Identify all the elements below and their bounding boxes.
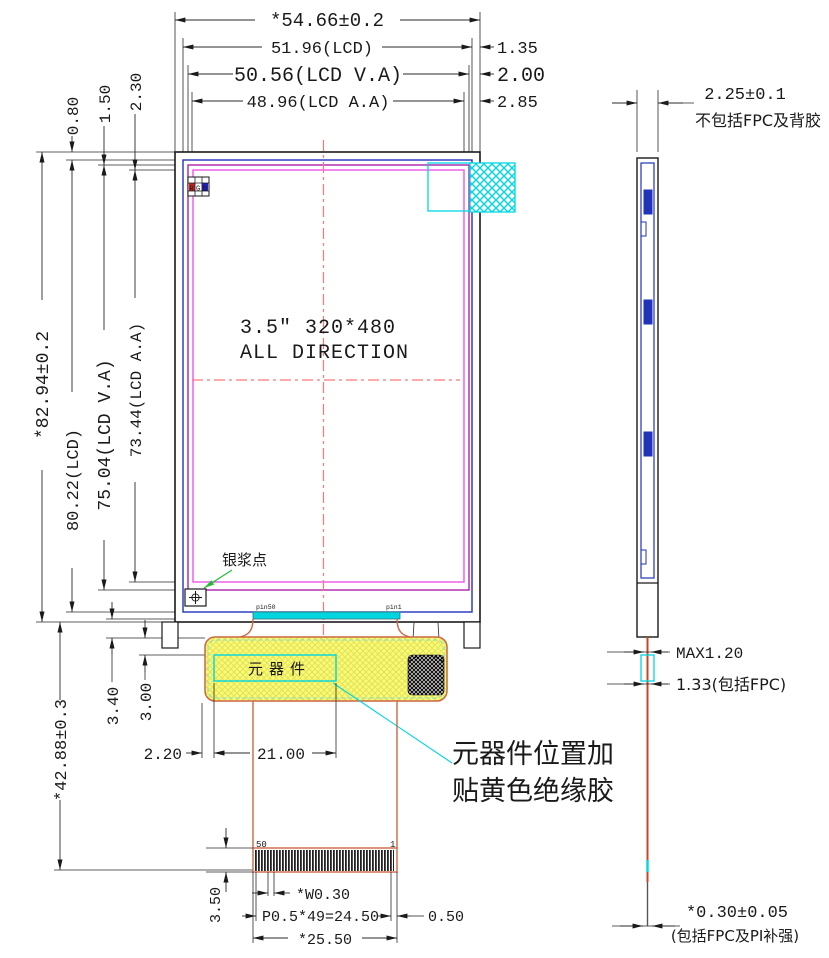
silver-paste-label: 银浆点 (222, 551, 267, 569)
module-outline (175, 152, 480, 622)
dim-finger-width: *W0.30 (296, 887, 350, 904)
rgb-g: G (196, 186, 200, 194)
component-blob (408, 655, 444, 695)
module-foot-left (162, 622, 178, 648)
dim-thickness-note: 不包括FPC及背胶 (695, 111, 821, 130)
dim-fpc-length: *42.88±0.3 (53, 699, 72, 801)
dim-comp-offset-b: 3.40 (105, 687, 123, 725)
dim-va-height: 75.04(LCD V.A) (96, 359, 116, 510)
dim-right-gap-va: 2.00 (497, 65, 545, 88)
side-tab-2 (644, 300, 652, 324)
dim-lcd-width: 51.96(LCD) (271, 40, 373, 59)
pin-label-right: pin1 (386, 604, 402, 611)
dim-aa-width: 48.96(LCD A.A) (247, 94, 390, 113)
side-view: 2.25±0.1 不包括FPC及背胶 MAX1.20 1.33(包括FPC) *… (607, 86, 821, 945)
module-front-view: R G B 3.5" 320*480 ALL DIRECTION 银浆点 pin… (162, 140, 515, 668)
dim-right-gap-aa: 2.85 (497, 94, 538, 113)
dim-fpc-thickness: *0.30±0.05 (686, 904, 788, 923)
dim-comp-left-gap: 2.20 (144, 746, 182, 764)
module-foot-right (464, 622, 480, 648)
drawing-canvas: *54.66±0.2 51.96(LCD) 1.35 50.56(LCD V.A… (0, 0, 829, 958)
pin-number-left: 50 (256, 840, 267, 850)
dim-va-width: 50.56(LCD V.A) (234, 65, 402, 88)
note-line1: 元器件位置加 (452, 739, 614, 770)
dim-right-gap-lcd: 1.35 (497, 40, 538, 59)
pin-number-right: 1 (390, 840, 395, 850)
side-tab-1 (644, 190, 652, 214)
rgb-b: B (203, 186, 207, 194)
dim-lcd-height: 80.22(LCD) (65, 429, 84, 531)
dim-total-width: *54.66±0.2 (270, 10, 384, 32)
dim-fpc-zone: 1.33(包括FPC) (676, 675, 786, 694)
lcd-outline-drawing: *54.66±0.2 51.96(LCD) 1.35 50.56(LCD V.A… (0, 0, 829, 958)
note-line2: 贴黄色绝缘胶 (452, 776, 614, 807)
rgb-pixel-marker: R G B (188, 177, 209, 196)
dim-pitch: P0.5*49=24.50 (262, 909, 379, 926)
fpc-dimensions: 2.20 21.00 3.50 *W0.30 P0.5*49=24.50 0.5… (144, 683, 464, 949)
component-label: 元器件 (248, 660, 311, 678)
dim-connector-width: *25.50 (298, 932, 352, 949)
dim-max-thickness: MAX1.20 (676, 645, 743, 663)
dim-top-gap-aa: 2.30 (128, 73, 146, 111)
corner-hatched-pad (470, 163, 515, 212)
side-profile-outline (637, 158, 658, 637)
dim-comp-offset-a: 3.00 (138, 683, 156, 721)
panel-direction-label: ALL DIRECTION (240, 342, 409, 365)
dim-finger-height: 3.50 (208, 887, 225, 923)
dim-aa-height: 73.44(LCD A.A) (128, 323, 146, 457)
fpc-bonding-bar (253, 612, 400, 619)
connector-pins (255, 850, 394, 871)
dim-top-gap-va: 1.50 (97, 85, 115, 123)
dim-thickness: 2.25±0.1 (704, 86, 786, 105)
fpc: 元器件 50 1 (205, 619, 452, 872)
panel-size-label: 3.5" 320*480 (240, 317, 396, 340)
dim-fpc-thickness-note: (包括FPC及PI补强) (671, 927, 799, 945)
pin-label-left: pin50 (256, 604, 276, 611)
dim-total-height: *82.94±0.2 (34, 331, 54, 439)
dim-comp-width: 21.00 (257, 746, 305, 764)
dim-edge-gap: 0.50 (428, 909, 464, 926)
insulation-note: 元器件位置加 贴黄色绝缘胶 (452, 739, 614, 807)
side-tab-3 (644, 432, 652, 456)
dim-top-gap-lcd: 0.80 (65, 97, 83, 135)
top-dimensions: *54.66±0.2 51.96(LCD) 1.35 50.56(LCD V.A… (175, 10, 545, 171)
